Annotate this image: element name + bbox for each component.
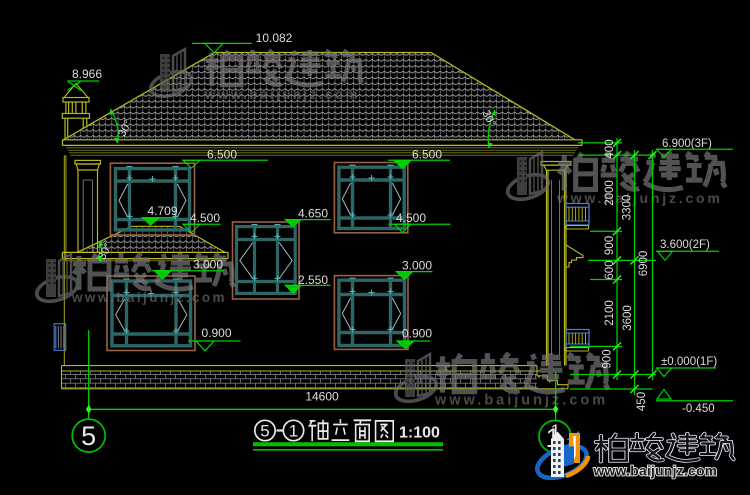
svg-text:14600: 14600 [305,390,339,404]
svg-text:www.baijunjz.com: www.baijunjz.com [204,87,360,102]
svg-text:±0.000(1F): ±0.000(1F) [661,356,717,368]
svg-text:-0.450: -0.450 [682,403,715,415]
svg-text:1: 1 [289,422,298,441]
svg-text:www.baijunjz.com: www.baijunjz.com [71,290,227,305]
svg-text:600: 600 [604,260,616,279]
svg-text:3300: 3300 [622,195,634,221]
svg-text:10.082: 10.082 [256,31,293,45]
svg-text:900: 900 [604,236,616,255]
svg-text:2100: 2100 [604,300,616,326]
svg-text:900: 900 [602,349,614,368]
svg-text:2000: 2000 [604,180,616,206]
svg-text:1: 1 [551,421,560,440]
svg-text:5: 5 [81,421,96,451]
svg-text:6900: 6900 [638,251,650,277]
svg-text:3600: 3600 [622,305,634,331]
svg-text:www.baijunjz.com: www.baijunjz.com [434,393,608,409]
svg-text:450: 450 [636,392,648,411]
svg-text:1:100: 1:100 [399,425,440,442]
svg-text:8.966: 8.966 [72,67,102,81]
svg-text:3.000: 3.000 [193,258,223,272]
svg-text:6.500: 6.500 [207,148,237,162]
svg-text:4.500: 4.500 [396,211,426,225]
svg-text:3.600(2F): 3.600(2F) [660,239,710,251]
svg-text:6.500: 6.500 [412,148,442,162]
svg-text:6.900(3F): 6.900(3F) [662,138,712,150]
svg-text:0.900: 0.900 [201,326,231,340]
svg-text:4.709: 4.709 [147,204,177,218]
svg-text:4.500: 4.500 [190,211,220,225]
svg-text:www.baijunjz.com: www.baijunjz.com [556,190,723,206]
svg-text:3.000: 3.000 [402,259,432,273]
svg-text:0.900: 0.900 [402,327,432,341]
svg-text:5: 5 [260,422,269,441]
svg-text:4.650: 4.650 [298,206,328,220]
svg-text:400: 400 [604,139,616,158]
svg-text:www.baijunjz.com: www.baijunjz.com [593,464,718,479]
